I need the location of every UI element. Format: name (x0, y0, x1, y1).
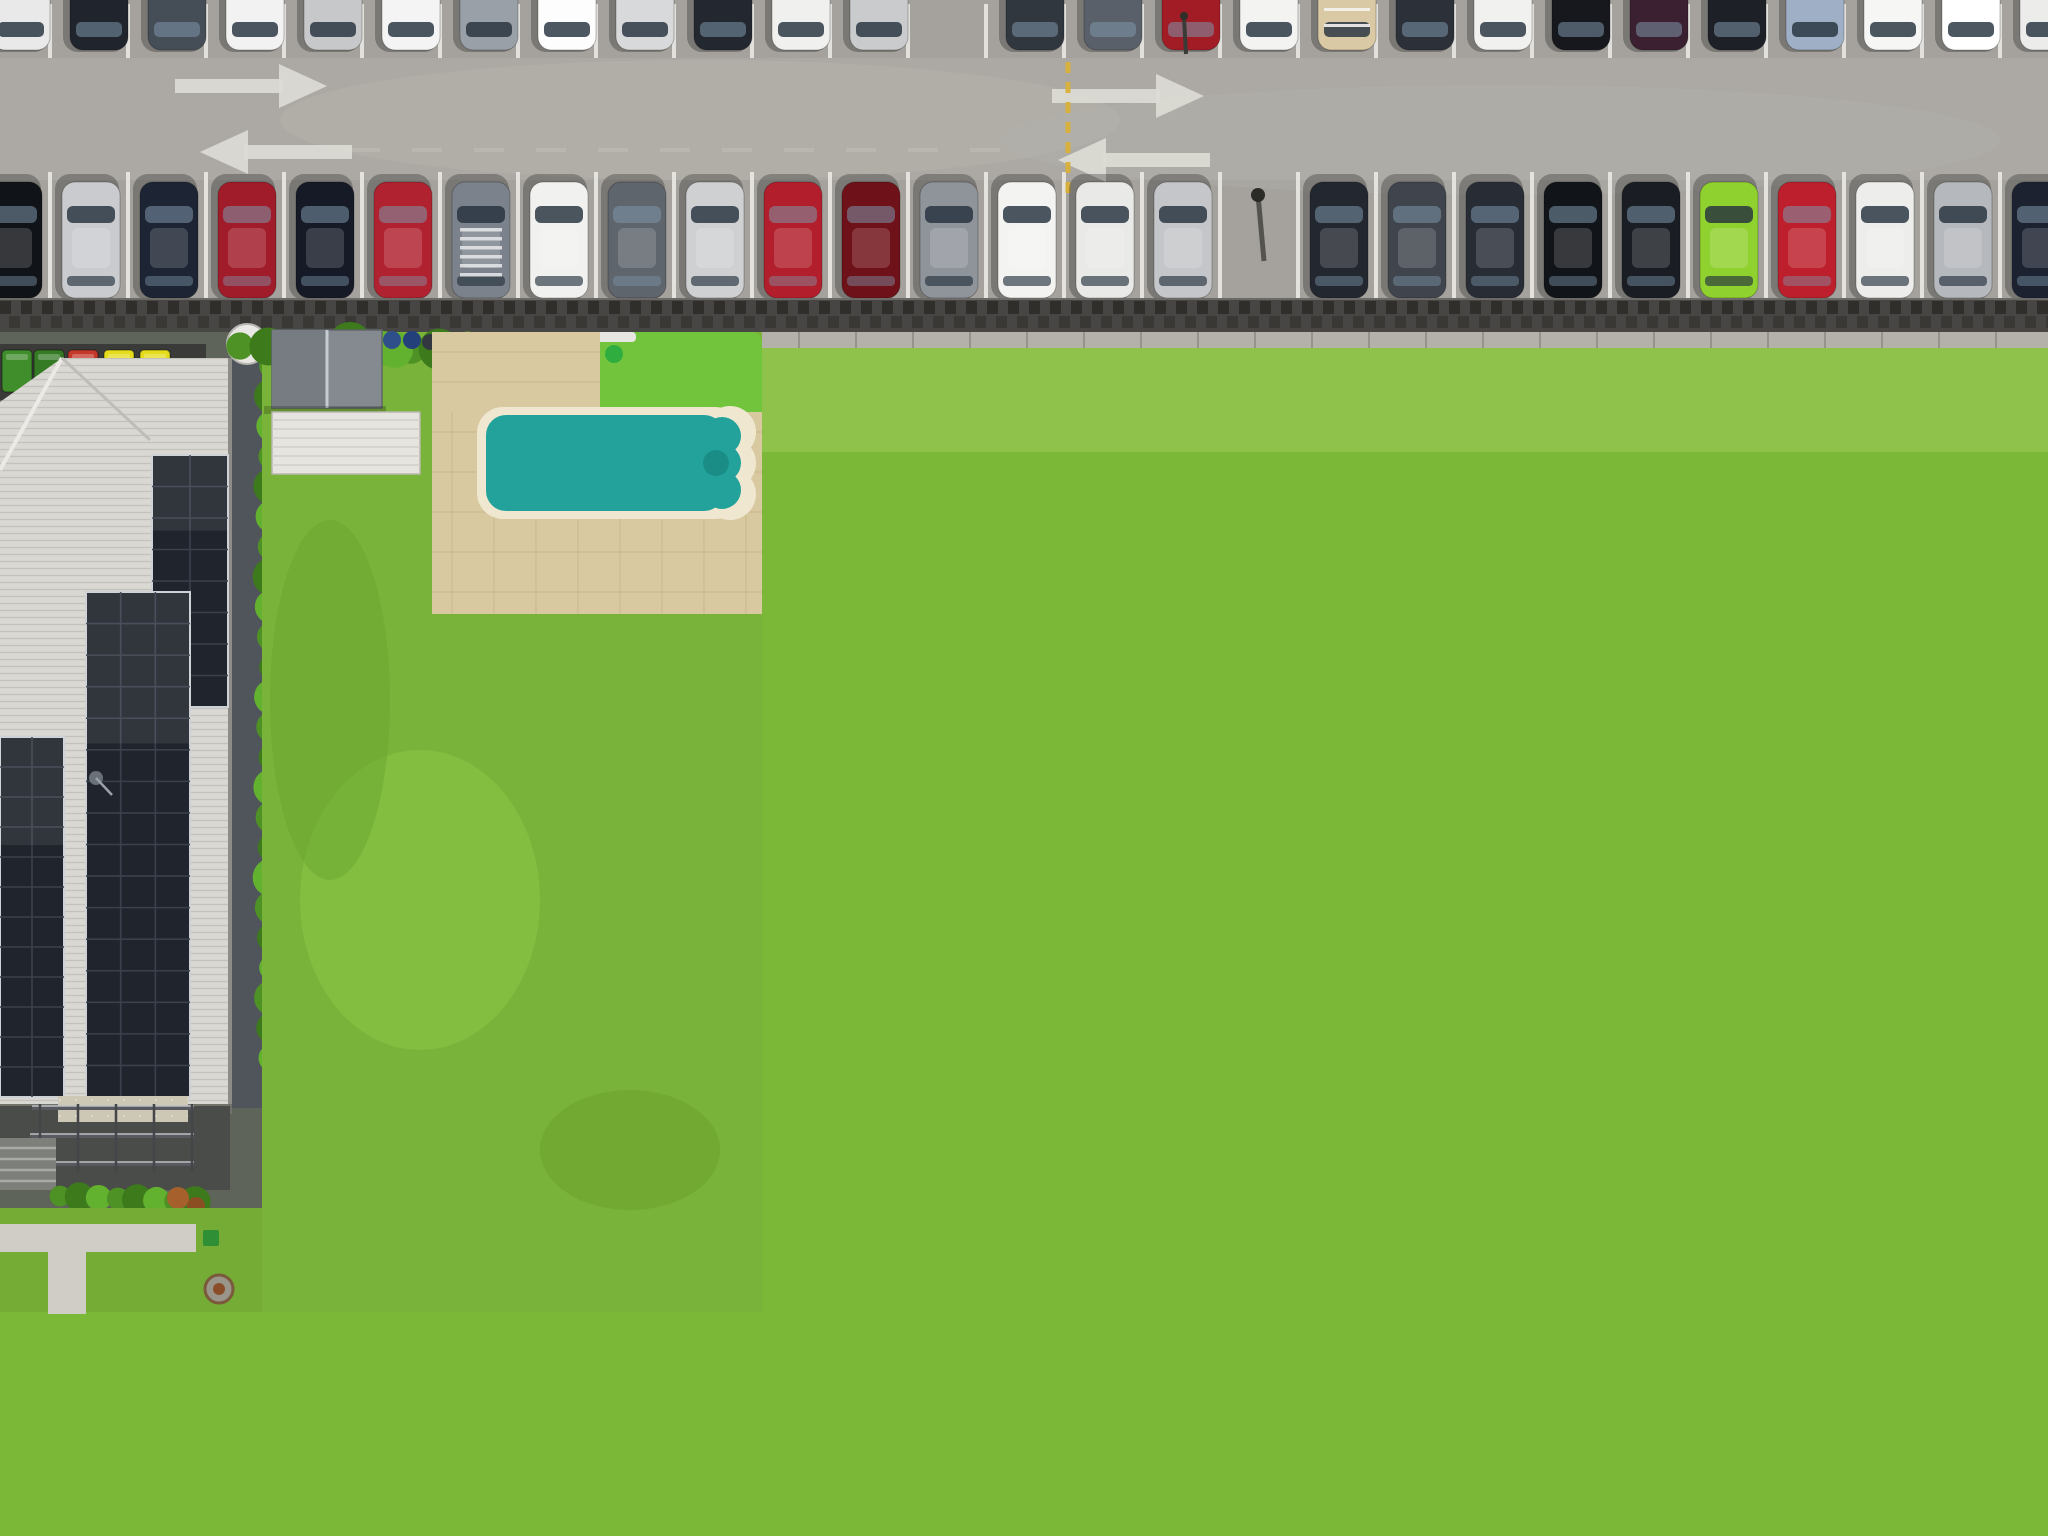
property-neighbor-left (226, 322, 762, 1312)
property-left-building (0, 324, 302, 1314)
parking-lot (0, 0, 2048, 312)
aerial-photo-stage (0, 0, 2048, 1536)
aerial-photo (0, 0, 2048, 1536)
